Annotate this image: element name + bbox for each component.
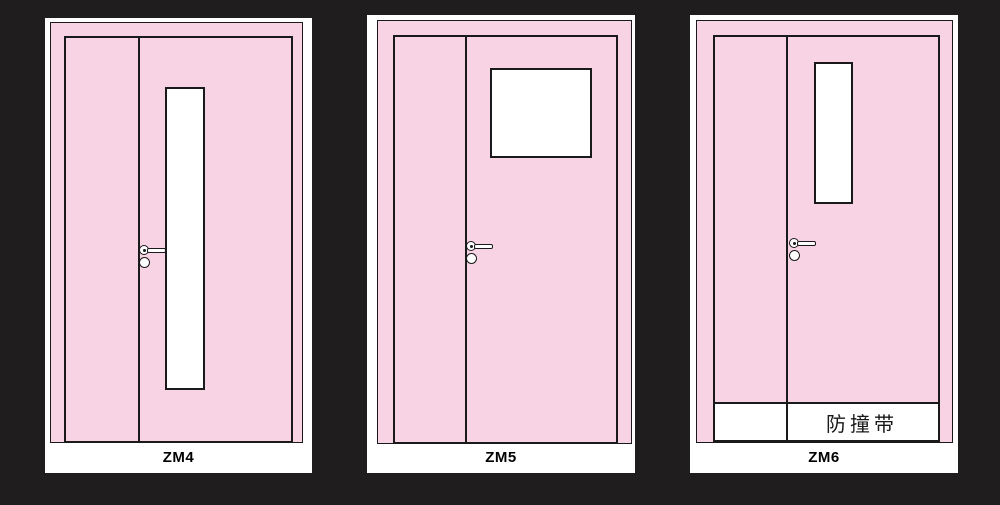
handle-lever-icon [147,248,166,253]
door-model-label: ZM4 [45,449,312,466]
door-leaf-divider [786,37,788,440]
door-leaf-divider [138,38,140,441]
door-model-label: ZM6 [690,449,958,466]
vision-panel-window [165,87,205,390]
door-mat: ZM5 [367,15,635,473]
lock-cylinder-icon [789,250,800,261]
door-frame: 防撞带 [696,20,953,443]
door-model-label: ZM5 [367,449,635,466]
anti-collision-strip: 防撞带 [715,402,938,440]
door-catalog-image: ZM4 ZM5 [0,0,1000,505]
door-mat: 防撞带 ZM6 [690,15,958,473]
lock-cylinder-icon [139,257,150,268]
handle-spindle-icon [143,249,146,252]
lock-cylinder-icon [466,253,477,264]
handle-spindle-icon [470,245,473,248]
door-mat: ZM4 [45,18,312,473]
vision-panel-window [490,68,592,158]
door-leaf-divider [465,37,467,442]
door-frame [377,20,632,444]
handle-spindle-icon [793,242,796,245]
handle-lever-icon [474,244,493,249]
door-frame [50,22,303,443]
handle-lever-icon [797,241,816,246]
vision-panel-window [814,62,853,204]
anti-collision-strip-label: 防撞带 [786,404,938,440]
